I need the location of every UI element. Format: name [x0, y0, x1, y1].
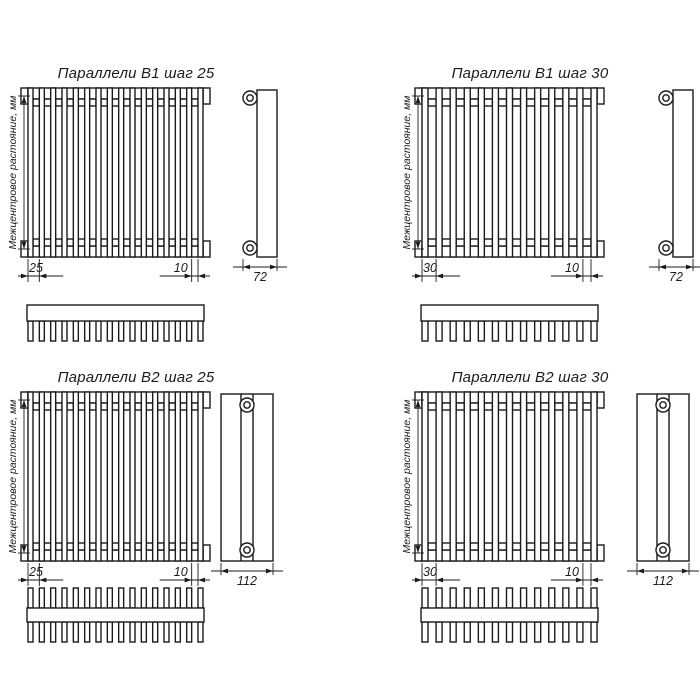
geometry [412, 392, 699, 642]
top-view [27, 305, 204, 341]
center-distance-axis-label: Межцентровое растояние, мм [401, 96, 413, 250]
top-view [421, 588, 598, 642]
drawing-parallels-v2-step-30: Параллели В2 шаг 30 Межцентровое растоян… [401, 369, 699, 642]
drawing-parallels-v1-step-30: Параллели В1 шаг 30 Межцентровое растоян… [401, 65, 700, 341]
dim-label-gap: 10 [174, 565, 188, 579]
side-view [243, 90, 277, 257]
front-view [415, 88, 604, 257]
drawing-title: Параллели В1 шаг 30 [452, 65, 609, 82]
dim-label-step: 25 [28, 565, 43, 579]
drawing-parallels-v1-step-25: Параллели В1 шаг 25 Межцентровое растоян… [7, 65, 287, 341]
radiator-technical-drawing: Параллели В1 шаг 25 Межцентровое растоян… [0, 0, 700, 700]
center-distance-axis-label: Межцентровое растояние, мм [401, 400, 413, 554]
dim-label-step: 30 [423, 261, 437, 275]
center-distance-axis-label: Межцентровое растояние, мм [7, 96, 19, 250]
side-view [221, 394, 273, 561]
geometry [18, 392, 283, 642]
drawing-title: Параллели В1 шаг 25 [58, 65, 215, 82]
geometry [18, 88, 287, 341]
dim-label-step: 30 [423, 565, 437, 579]
front-view [21, 392, 210, 561]
drawing-parallels-v2-step-25: Параллели В2 шаг 25 Межцентровое растоян… [7, 369, 283, 642]
side-view [637, 394, 689, 561]
dim-label-depth: 72 [669, 270, 683, 284]
dim-label-gap: 10 [174, 261, 188, 275]
side-view [659, 90, 693, 257]
front-view [415, 392, 604, 561]
top-view [421, 305, 598, 341]
drawing-title: Параллели В2 шаг 25 [58, 369, 215, 386]
geometry [412, 88, 700, 341]
dim-label-gap: 10 [565, 565, 579, 579]
dim-label-step: 25 [28, 261, 43, 275]
dim-label-depth: 72 [253, 270, 267, 284]
front-view [21, 88, 210, 257]
drawing-title: Параллели В2 шаг 30 [452, 369, 609, 386]
center-distance-axis-label: Межцентровое растояние, мм [7, 400, 19, 554]
dim-label-depth: 112 [653, 574, 673, 588]
top-view [27, 588, 204, 642]
dim-label-depth: 112 [237, 574, 257, 588]
dim-label-gap: 10 [565, 261, 579, 275]
drawing-sheet: Параллели В1 шаг 25 Межцентровое растоян… [0, 0, 700, 700]
